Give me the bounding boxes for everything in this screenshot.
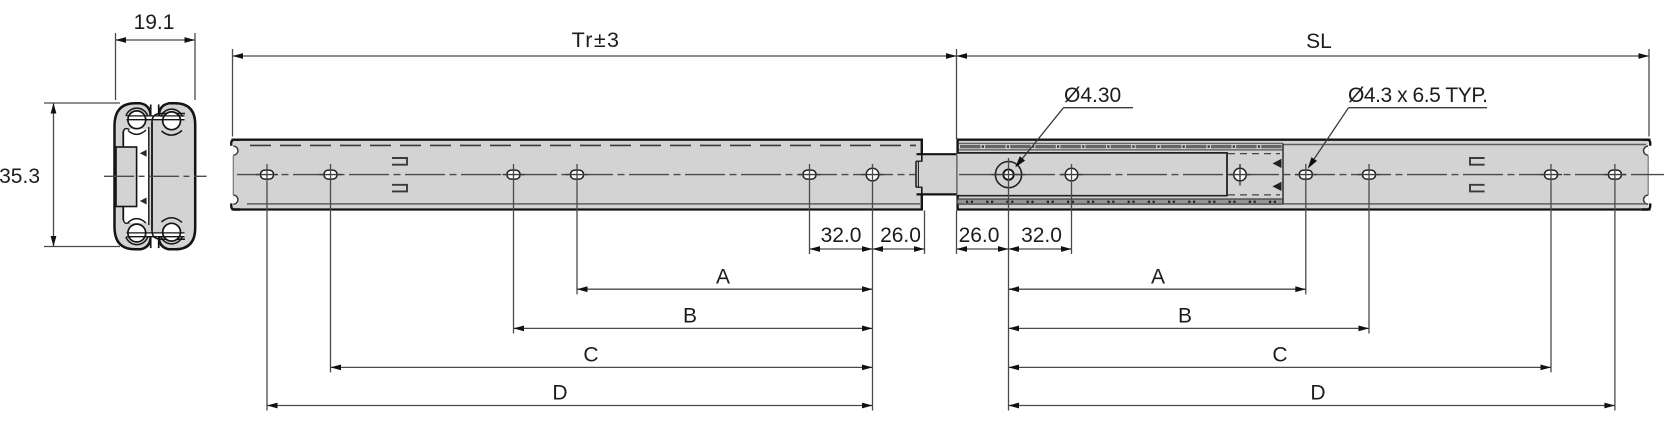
svg-text:Ø4.3 x 6.5 TYP.: Ø4.3 x 6.5 TYP.	[1348, 84, 1488, 107]
svg-text:D: D	[1310, 382, 1325, 405]
svg-text:D: D	[552, 382, 567, 405]
svg-text:A: A	[716, 266, 730, 289]
svg-text:32.0: 32.0	[821, 224, 862, 247]
svg-text:SL: SL	[1306, 30, 1332, 53]
svg-text:26.0: 26.0	[959, 224, 1000, 247]
svg-text:A: A	[1151, 266, 1165, 289]
svg-text:35.3: 35.3	[0, 165, 40, 188]
svg-text:19.1: 19.1	[134, 11, 175, 34]
svg-text:B: B	[683, 305, 697, 328]
svg-text:Ø4.30: Ø4.30	[1064, 84, 1121, 107]
svg-text:Tr±3: Tr±3	[572, 28, 621, 52]
svg-text:32.0: 32.0	[1021, 224, 1062, 247]
svg-text:B: B	[1178, 305, 1192, 328]
svg-text:26.0: 26.0	[880, 224, 921, 247]
svg-text:C: C	[1272, 344, 1287, 367]
svg-text:C: C	[583, 344, 598, 367]
